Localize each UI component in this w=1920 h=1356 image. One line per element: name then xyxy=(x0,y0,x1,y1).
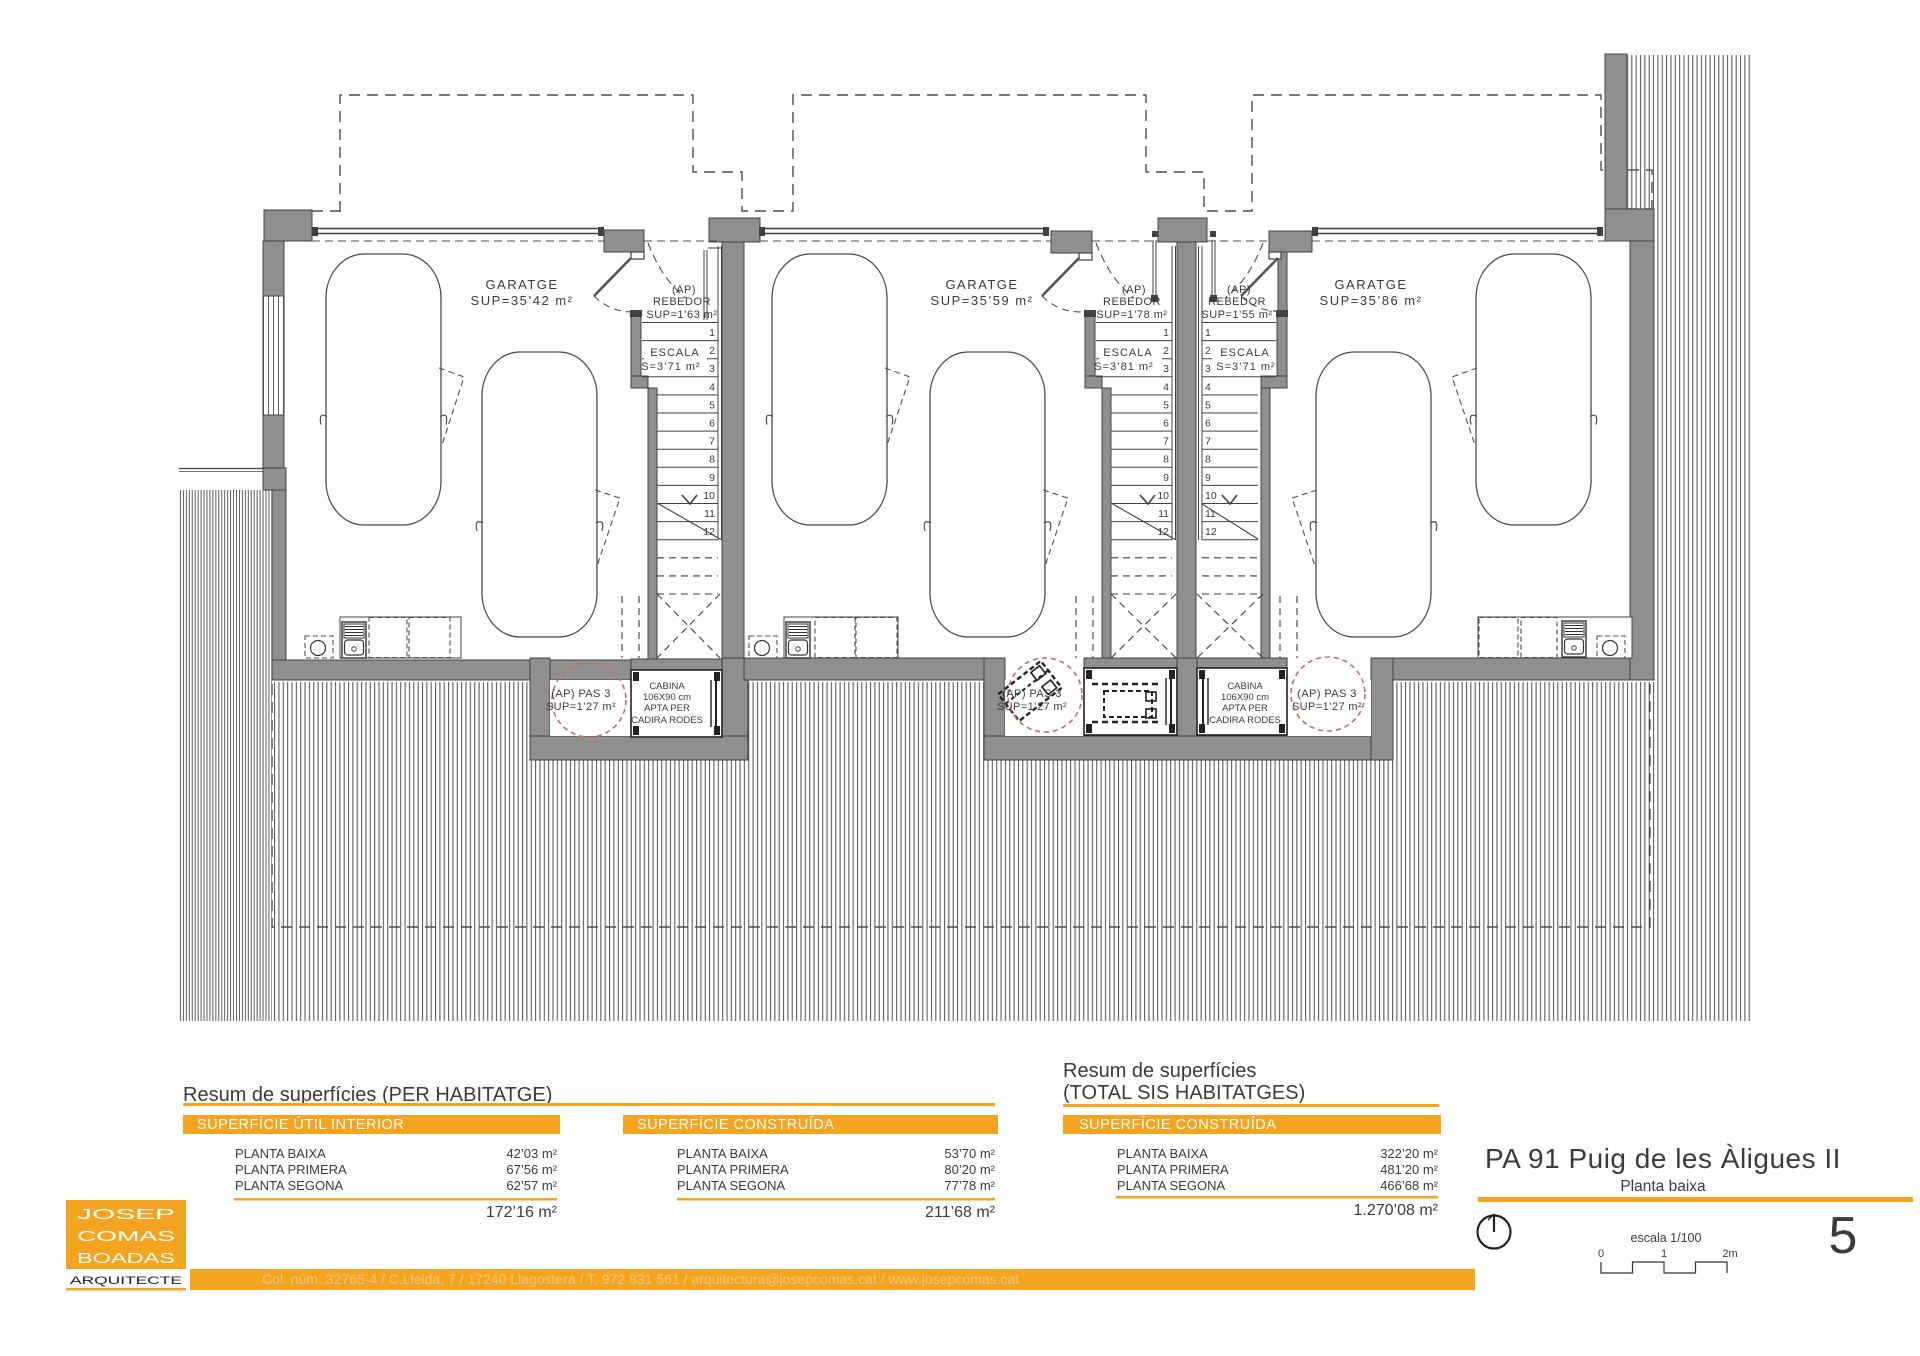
svg-text:2: 2 xyxy=(1205,345,1211,357)
svg-text:4: 4 xyxy=(1205,381,1211,393)
svg-text:62’57 m²: 62’57 m² xyxy=(506,1178,557,1193)
svg-text:0: 0 xyxy=(1598,1248,1604,1260)
svg-text:SUPERFÍCIE ÚTIL INTERIOR: SUPERFÍCIE ÚTIL INTERIOR xyxy=(197,1116,404,1133)
svg-text:2m: 2m xyxy=(1722,1248,1737,1260)
svg-text:106X90 cm: 106X90 cm xyxy=(643,692,691,703)
svg-text:481’20 m²: 481’20 m² xyxy=(1380,1162,1438,1177)
svg-text:PLANTA SEGONA: PLANTA SEGONA xyxy=(677,1178,785,1193)
svg-text:5: 5 xyxy=(1205,399,1211,411)
svg-text:PLANTA PRIMERA: PLANTA PRIMERA xyxy=(235,1162,347,1177)
svg-text:GARATGE: GARATGE xyxy=(485,277,558,292)
svg-text:11: 11 xyxy=(1158,508,1169,520)
svg-text:SUP=1’78 m²: SUP=1’78 m² xyxy=(1096,309,1167,321)
svg-text:(AP) PAS 3: (AP) PAS 3 xyxy=(1002,688,1061,700)
svg-text:PLANTA SEGONA: PLANTA SEGONA xyxy=(235,1178,343,1193)
svg-text:(AP) PAS 3: (AP) PAS 3 xyxy=(551,688,610,700)
svg-text:PLANTA BAIXA: PLANTA BAIXA xyxy=(677,1146,768,1161)
svg-text:escala 1/100: escala 1/100 xyxy=(1631,1231,1702,1245)
svg-text:211’68 m²: 211’68 m² xyxy=(925,1204,996,1221)
svg-text:SUP=1’27 m²: SUP=1’27 m² xyxy=(1292,701,1362,713)
svg-text:10: 10 xyxy=(1205,490,1217,502)
svg-text:2: 2 xyxy=(709,345,715,357)
svg-text:ESCALA: ESCALA xyxy=(1103,347,1152,359)
svg-text:COMAS: COMAS xyxy=(77,1228,175,1245)
svg-text:SUP=1’55 m²: SUP=1’55 m² xyxy=(1201,309,1272,321)
svg-text:ESCALA: ESCALA xyxy=(650,347,699,359)
svg-text:(AP): (AP) xyxy=(672,284,696,296)
svg-text:PLANTA PRIMERA: PLANTA PRIMERA xyxy=(1117,1162,1229,1177)
svg-text:5: 5 xyxy=(1829,1207,1858,1265)
svg-text:GARATGE: GARATGE xyxy=(1334,277,1407,292)
svg-text:106X90 cm: 106X90 cm xyxy=(1221,692,1269,703)
svg-text:3: 3 xyxy=(1205,363,1211,375)
svg-text:BOADAS: BOADAS xyxy=(77,1250,175,1267)
svg-text:80’20 m²: 80’20 m² xyxy=(944,1162,995,1177)
svg-text:SUPERFÍCIE CONSTRUÍDA: SUPERFÍCIE CONSTRUÍDA xyxy=(1079,1116,1276,1133)
svg-text:S=3’71 m²: S=3’71 m² xyxy=(641,361,700,373)
svg-text:Resum de superfícies: Resum de superfícies xyxy=(1063,1060,1256,1082)
svg-text:1.270’08 m²: 1.270’08 m² xyxy=(1354,1202,1439,1219)
svg-text:67’56 m²: 67’56 m² xyxy=(506,1162,557,1177)
svg-text:PLANTA BAIXA: PLANTA BAIXA xyxy=(1117,1146,1208,1161)
svg-text:REBEDOR: REBEDOR xyxy=(653,296,711,308)
svg-text:9: 9 xyxy=(709,472,715,484)
svg-text:1: 1 xyxy=(1163,327,1169,339)
svg-text:7: 7 xyxy=(709,436,715,448)
svg-text:5: 5 xyxy=(709,399,715,411)
svg-text:CADIRA RODES: CADIRA RODES xyxy=(1209,715,1281,726)
svg-text:1: 1 xyxy=(1205,327,1211,339)
svg-text:42’03 m²: 42’03 m² xyxy=(506,1146,557,1161)
svg-text:APTA PER: APTA PER xyxy=(644,703,690,714)
svg-text:10: 10 xyxy=(1157,490,1169,502)
svg-text:S=3’81 m²: S=3’81 m² xyxy=(1094,361,1153,373)
svg-text:CADIRA RODES: CADIRA RODES xyxy=(631,715,703,726)
svg-text:172’16 m²: 172’16 m² xyxy=(486,1204,558,1221)
svg-text:PLANTA PRIMERA: PLANTA PRIMERA xyxy=(677,1162,789,1177)
svg-text:4: 4 xyxy=(1163,381,1169,393)
svg-text:1: 1 xyxy=(709,327,715,339)
svg-text:77’78 m²: 77’78 m² xyxy=(944,1178,995,1193)
svg-text:(TOTAL SIS HABITATGES): (TOTAL SIS HABITATGES) xyxy=(1063,1082,1305,1104)
svg-text:(AP): (AP) xyxy=(1122,284,1146,296)
svg-text:3: 3 xyxy=(709,363,715,375)
svg-text:SUP=1’27 m²: SUP=1’27 m² xyxy=(997,701,1067,713)
svg-text:PA 91 Puig de les Àligues II: PA 91 Puig de les Àligues II xyxy=(1485,1143,1841,1174)
svg-text:8: 8 xyxy=(709,454,715,466)
svg-text:CABINA: CABINA xyxy=(649,681,685,692)
svg-text:SUPERFÍCIE CONSTRUÍDA: SUPERFÍCIE CONSTRUÍDA xyxy=(637,1116,834,1133)
svg-text:REBEDOR: REBEDOR xyxy=(1208,296,1266,308)
svg-text:322’20 m²: 322’20 m² xyxy=(1380,1146,1438,1161)
svg-text:PLANTA SEGONA: PLANTA SEGONA xyxy=(1117,1178,1225,1193)
svg-text:6: 6 xyxy=(1205,418,1211,430)
svg-text:466’68 m²: 466’68 m² xyxy=(1380,1178,1438,1193)
svg-text:12: 12 xyxy=(1205,526,1217,538)
svg-text:Planta baixa: Planta baixa xyxy=(1620,1178,1706,1195)
svg-text:6: 6 xyxy=(1163,418,1169,430)
svg-text:1: 1 xyxy=(1661,1248,1667,1260)
svg-text:SUP=35’42 m²: SUP=35’42 m² xyxy=(471,293,574,308)
svg-text:4: 4 xyxy=(709,381,715,393)
svg-text:7: 7 xyxy=(1163,436,1169,448)
svg-text:SUP=35’59 m²: SUP=35’59 m² xyxy=(931,293,1034,308)
svg-text:10: 10 xyxy=(703,490,715,502)
svg-text:9: 9 xyxy=(1205,472,1211,484)
svg-text:ARQUITECTE: ARQUITECTE xyxy=(70,1275,182,1287)
svg-text:SUP=1’27 m²: SUP=1’27 m² xyxy=(546,701,616,713)
svg-text:12: 12 xyxy=(1157,526,1169,538)
svg-text:APTA PER: APTA PER xyxy=(1222,703,1268,714)
svg-text:8: 8 xyxy=(1163,454,1169,466)
svg-text:7: 7 xyxy=(1205,436,1211,448)
svg-text:8: 8 xyxy=(1205,454,1211,466)
svg-text:12: 12 xyxy=(703,526,715,538)
svg-text:(AP): (AP) xyxy=(1227,284,1251,296)
svg-text:3: 3 xyxy=(1163,363,1169,375)
svg-text:9: 9 xyxy=(1163,472,1169,484)
svg-text:ESCALA: ESCALA xyxy=(1220,347,1269,359)
svg-text:Resum de superfícies (PER HABI: Resum de superfícies (PER HABITATGE) xyxy=(183,1084,552,1106)
svg-text:6: 6 xyxy=(709,418,715,430)
svg-text:GARATGE: GARATGE xyxy=(945,277,1018,292)
svg-text:SUP=1’63 m²: SUP=1’63 m² xyxy=(646,309,717,321)
svg-text:SUP=35’86 m²: SUP=35’86 m² xyxy=(1320,293,1423,308)
svg-text:11: 11 xyxy=(704,508,715,520)
svg-text:S=3’71 m²: S=3’71 m² xyxy=(1216,361,1275,373)
svg-text:Col. núm. 32765-4 / C.Lleida,: Col. núm. 32765-4 / C.Lleida, 7 / 17240 … xyxy=(262,1271,1019,1287)
svg-text:(AP) PAS 3: (AP) PAS 3 xyxy=(1297,688,1356,700)
svg-text:CABINA: CABINA xyxy=(1227,681,1263,692)
svg-text:REBEDOR: REBEDOR xyxy=(1103,296,1161,308)
svg-text:PLANTA BAIXA: PLANTA BAIXA xyxy=(235,1146,326,1161)
svg-text:2: 2 xyxy=(1163,345,1169,357)
svg-text:53’70 m²: 53’70 m² xyxy=(944,1146,995,1161)
svg-text:5: 5 xyxy=(1163,399,1169,411)
svg-text:JOSEP: JOSEP xyxy=(77,1206,175,1223)
